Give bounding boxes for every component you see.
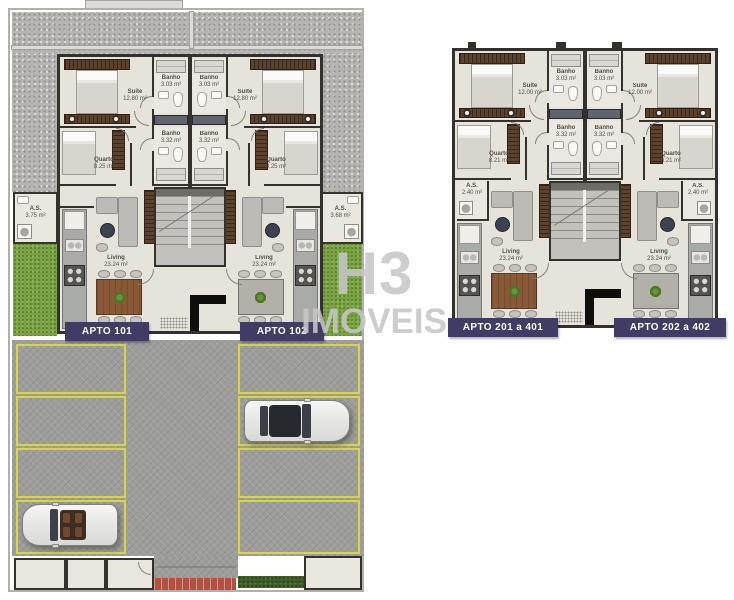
sink [553, 141, 564, 149]
wardrobe [64, 59, 130, 70]
entry-wall [190, 295, 226, 304]
door-arc [646, 122, 659, 135]
sofa [242, 197, 262, 247]
room-name: Living [637, 249, 681, 256]
toilet [592, 86, 602, 101]
shaft [549, 109, 583, 119]
coffee-table [660, 217, 675, 232]
stairwell [154, 187, 226, 267]
stove [295, 265, 316, 286]
kitchen-sink [691, 251, 710, 264]
room-label: Quarto 8.25 m² [84, 157, 124, 171]
shower [156, 168, 186, 181]
street-front-room [66, 558, 106, 590]
door-arc [134, 111, 149, 126]
room-area: 3.03 m² [152, 82, 190, 89]
wall [60, 184, 116, 186]
building-ground: Suíte 12.80 m² Banho 3.03 m² [57, 54, 323, 334]
wall [130, 143, 132, 186]
apto-202-402-label: APTO 202 a 402 [614, 318, 726, 337]
room-area: 23.24 m² [637, 256, 681, 263]
coffee-table [100, 223, 115, 238]
coffee-table [265, 223, 280, 238]
chair [493, 264, 505, 272]
brick-sidewalk [154, 578, 236, 590]
kitchen-sink [65, 239, 84, 252]
room-name: Quarto [256, 157, 296, 164]
room-label: Living 23.24 m² [242, 255, 286, 269]
chair [509, 310, 521, 318]
gravel-yard [317, 54, 362, 192]
wall [226, 151, 228, 185]
room-label: A.S. 2.40 m² [681, 183, 715, 197]
door-arc [533, 263, 549, 279]
stairwell [549, 181, 621, 261]
wall [455, 178, 511, 180]
sofa [262, 197, 284, 214]
car-roof [269, 405, 301, 437]
suite-bed [471, 64, 513, 108]
chair [525, 310, 537, 318]
washing-machine [459, 201, 473, 215]
fridge [690, 225, 711, 244]
chair [114, 270, 126, 278]
room-name: A.S. [13, 206, 58, 213]
sink [606, 85, 617, 93]
car-mirror [52, 502, 59, 506]
kitchen-sink [296, 239, 315, 252]
wall [457, 219, 489, 221]
wall [621, 145, 623, 179]
room-area: 3.75 m² [13, 213, 58, 220]
wall [681, 219, 713, 221]
fence-line [12, 46, 362, 49]
room-area: 3.32 m² [547, 132, 585, 139]
sofa [637, 191, 657, 241]
washing-machine [17, 224, 32, 239]
car-seat [74, 512, 83, 524]
entry-wall [585, 289, 621, 298]
room-name: Banho [585, 125, 623, 132]
door-arc [535, 132, 547, 144]
plant [509, 286, 520, 297]
chair [270, 270, 282, 278]
chair [98, 270, 110, 278]
toilet [173, 147, 183, 162]
room-label: A.S. 3.68 m² [318, 206, 363, 220]
car-mirror [52, 544, 59, 548]
car-suv [244, 400, 350, 442]
room-name: Living [489, 249, 533, 256]
car-windshield [302, 404, 311, 438]
sink [211, 147, 222, 155]
stair-stringer [583, 190, 586, 242]
room-area: 8.25 m² [256, 164, 296, 171]
lamp-icon [304, 115, 312, 123]
room-area: 2.40 m² [455, 190, 489, 197]
parking-space [16, 396, 126, 446]
sink [553, 85, 564, 93]
shower [194, 60, 224, 73]
chair [509, 264, 521, 272]
wall [525, 137, 527, 180]
shower [156, 60, 186, 73]
floor-plan-image: A.S. 3.75 m² A.S. 3.68 m² Suíte 12. [0, 0, 734, 600]
doormat [160, 317, 188, 329]
chair [493, 310, 505, 318]
room-label: Banho 3.32 m² [547, 125, 585, 139]
entry-wall [190, 304, 199, 331]
chair [491, 237, 503, 246]
door-arc [226, 269, 242, 285]
room-area: 3.68 m² [318, 213, 363, 220]
room-area: 12.80 m² [228, 96, 262, 103]
street-front-room [304, 556, 362, 590]
room-label: Banho 3.03 m² [547, 69, 585, 83]
stove [64, 265, 85, 286]
planter-panel [620, 184, 631, 238]
suite-bed [262, 70, 304, 114]
wall [659, 178, 715, 180]
chair [667, 237, 679, 246]
shower [589, 162, 619, 175]
room-name: A.S. [681, 183, 715, 190]
building-upper: Suíte 12.00 m² Banho 3.03 m² [452, 48, 718, 328]
room-name: Banho [190, 75, 228, 82]
room-area: 23.24 m² [242, 262, 286, 269]
room-label: Banho 3.03 m² [585, 69, 623, 83]
shaft [154, 115, 188, 125]
door-arc [511, 122, 524, 135]
car-mirror [304, 398, 311, 402]
wall [455, 120, 531, 122]
room-label: Banho 3.03 m² [190, 75, 228, 89]
room-name: Suíte [623, 83, 657, 90]
room-name: A.S. [318, 206, 363, 213]
room-name: Banho [152, 131, 190, 138]
parking-space [238, 344, 360, 394]
car-convertible [22, 504, 118, 546]
room-label: Suíte 12.00 m² [513, 83, 547, 97]
room-area: 12.00 m² [623, 90, 657, 97]
wall [60, 126, 136, 128]
wall [547, 178, 585, 180]
chair [272, 243, 284, 252]
room-name: A.S. [455, 183, 489, 190]
wardrobe [459, 53, 525, 64]
toilet [568, 141, 578, 156]
door-arc [140, 138, 152, 150]
ground-floor-lot: A.S. 3.75 m² A.S. 3.68 m² Suíte 12. [8, 8, 364, 592]
building-interior: Suíte 12.80 m² Banho 3.03 m² [60, 57, 320, 331]
laundry-sink [17, 196, 29, 204]
sink [158, 147, 169, 155]
lamp-icon [260, 115, 268, 123]
car-seat [74, 526, 83, 538]
room-label: Living 23.24 m² [94, 255, 138, 269]
lamp-icon [68, 115, 76, 123]
grass-patch [318, 242, 362, 336]
apto-101-label: APTO 101 [65, 322, 149, 341]
room-label: Living 23.24 m² [489, 249, 533, 263]
room-name: Suíte [228, 89, 262, 96]
parking-space [16, 344, 126, 394]
door-arc [138, 269, 154, 285]
chair [665, 310, 677, 318]
plant [255, 292, 266, 303]
sink [606, 141, 617, 149]
room-area: 12.80 m² [118, 96, 152, 103]
room-area: 3.32 m² [190, 138, 228, 145]
apto-201-401-label: APTO 201 a 401 [448, 318, 558, 337]
chair [649, 264, 661, 272]
shower [589, 54, 619, 67]
room-name: Banho [547, 125, 585, 132]
chair [649, 310, 661, 318]
room-area: 23.24 m² [489, 256, 533, 263]
room-name: Quarto [651, 151, 691, 158]
room-name: Banho [547, 69, 585, 76]
room-name: Quarto [84, 157, 124, 164]
stove [690, 275, 711, 296]
lamp-icon [655, 109, 663, 117]
shaft [192, 115, 226, 125]
toilet [197, 147, 207, 162]
room-label: A.S. 2.40 m² [455, 183, 489, 197]
shower [194, 168, 224, 181]
room-label: Suíte 12.00 m² [623, 83, 657, 97]
wall [244, 126, 320, 128]
fridge [459, 225, 480, 244]
shower [551, 54, 581, 67]
gravel-yard [12, 12, 362, 56]
plant [114, 292, 125, 303]
door-arc [626, 105, 641, 120]
room-label: Banho 3.32 m² [585, 125, 623, 139]
wall [286, 206, 320, 208]
room-area: 3.03 m² [585, 76, 623, 83]
sink [158, 91, 169, 99]
wall [248, 143, 250, 186]
apto-102-label: APTO 102 [240, 322, 324, 341]
door-arc [529, 105, 544, 120]
room-name: Living [242, 255, 286, 262]
hedge [238, 576, 304, 588]
car-mirror [304, 440, 311, 444]
room-label: Suíte 12.80 m² [118, 89, 152, 103]
building-interior: Suíte 12.00 m² Banho 3.03 m² [455, 51, 715, 325]
parking-space [238, 500, 360, 554]
stove [459, 275, 480, 296]
grass-patch [13, 242, 57, 336]
sofa [513, 191, 533, 241]
laundry-sink [347, 196, 359, 204]
room-label: Quarto 8.21 m² [651, 151, 691, 165]
stair-landing [156, 189, 224, 196]
car-seat [62, 512, 71, 524]
car-rear-glass [260, 406, 268, 436]
chair [254, 270, 266, 278]
room-label: Quarto 8.21 m² [479, 151, 519, 165]
gravel-yard [12, 54, 57, 192]
fridge [295, 211, 316, 230]
suite-bed [76, 70, 118, 114]
parking-space [238, 448, 360, 498]
chair [665, 264, 677, 272]
door-arc [623, 132, 635, 144]
room-name: Suíte [513, 83, 547, 90]
sink [211, 91, 222, 99]
toilet [568, 86, 578, 101]
wall [639, 120, 715, 122]
coffee-table [495, 217, 510, 232]
wall [152, 184, 190, 186]
wardrobe [645, 53, 711, 64]
room-area: 8.21 m² [651, 158, 691, 165]
room-name: Living [94, 255, 138, 262]
entry-wall [585, 298, 594, 325]
wall [60, 206, 94, 208]
room-area: 3.32 m² [585, 132, 623, 139]
room-area: 8.25 m² [84, 164, 124, 171]
lamp-icon [699, 109, 707, 117]
room-area: 3.03 m² [190, 82, 228, 89]
door-arc [621, 263, 637, 279]
door-arc [231, 111, 246, 126]
room-area: 2.40 m² [681, 190, 715, 197]
kitchen-sink [460, 251, 479, 264]
room-label: A.S. 3.75 m² [13, 206, 58, 220]
room-name: Banho [585, 69, 623, 76]
planter-panel [225, 190, 236, 244]
toilet [592, 141, 602, 156]
sofa [118, 197, 138, 247]
room-area: 12.00 m² [513, 90, 547, 97]
room-name: Suíte [118, 89, 152, 96]
parking-space [16, 448, 126, 498]
room-label: Living 23.24 m² [637, 249, 681, 263]
wall [643, 137, 645, 180]
wall [264, 184, 320, 186]
fridge [64, 211, 85, 230]
room-area: 8.21 m² [479, 158, 519, 165]
lamp-icon [112, 115, 120, 123]
door-arc [116, 128, 129, 141]
chair [96, 243, 108, 252]
entry-gate [156, 566, 236, 568]
toilet [173, 92, 183, 107]
plant [650, 286, 661, 297]
washing-machine [697, 201, 711, 215]
room-name: Banho [152, 75, 190, 82]
wardrobe [250, 59, 316, 70]
sofa [657, 191, 679, 208]
stair-stringer [188, 196, 191, 248]
sofa [491, 191, 513, 208]
lamp-icon [507, 109, 515, 117]
fence-line [190, 12, 193, 48]
room-label: Suíte 12.80 m² [228, 89, 262, 103]
room-area: 23.24 m² [94, 262, 138, 269]
door-arc [251, 128, 264, 141]
room-label: Banho 3.32 m² [152, 131, 190, 145]
stair-landing [551, 183, 619, 190]
washing-machine [344, 224, 359, 239]
chair [633, 310, 645, 318]
sofa [96, 197, 118, 214]
car-windshield [50, 509, 58, 541]
wall [585, 178, 623, 180]
room-label: Banho 3.32 m² [190, 131, 228, 145]
shower [551, 162, 581, 175]
room-name: Quarto [479, 151, 519, 158]
doormat [555, 311, 583, 323]
room-name: Banho [190, 131, 228, 138]
room-label: Quarto 8.25 m² [256, 157, 296, 171]
suite-bed [657, 64, 699, 108]
room-area: 3.03 m² [547, 76, 585, 83]
room-label: Banho 3.03 m² [152, 75, 190, 89]
wall [190, 184, 228, 186]
street-front-room [14, 558, 66, 590]
lamp-icon [463, 109, 471, 117]
room-area: 3.32 m² [152, 138, 190, 145]
shaft [587, 109, 621, 119]
car-seat [62, 526, 71, 538]
toilet [197, 92, 207, 107]
door-arc [228, 138, 240, 150]
